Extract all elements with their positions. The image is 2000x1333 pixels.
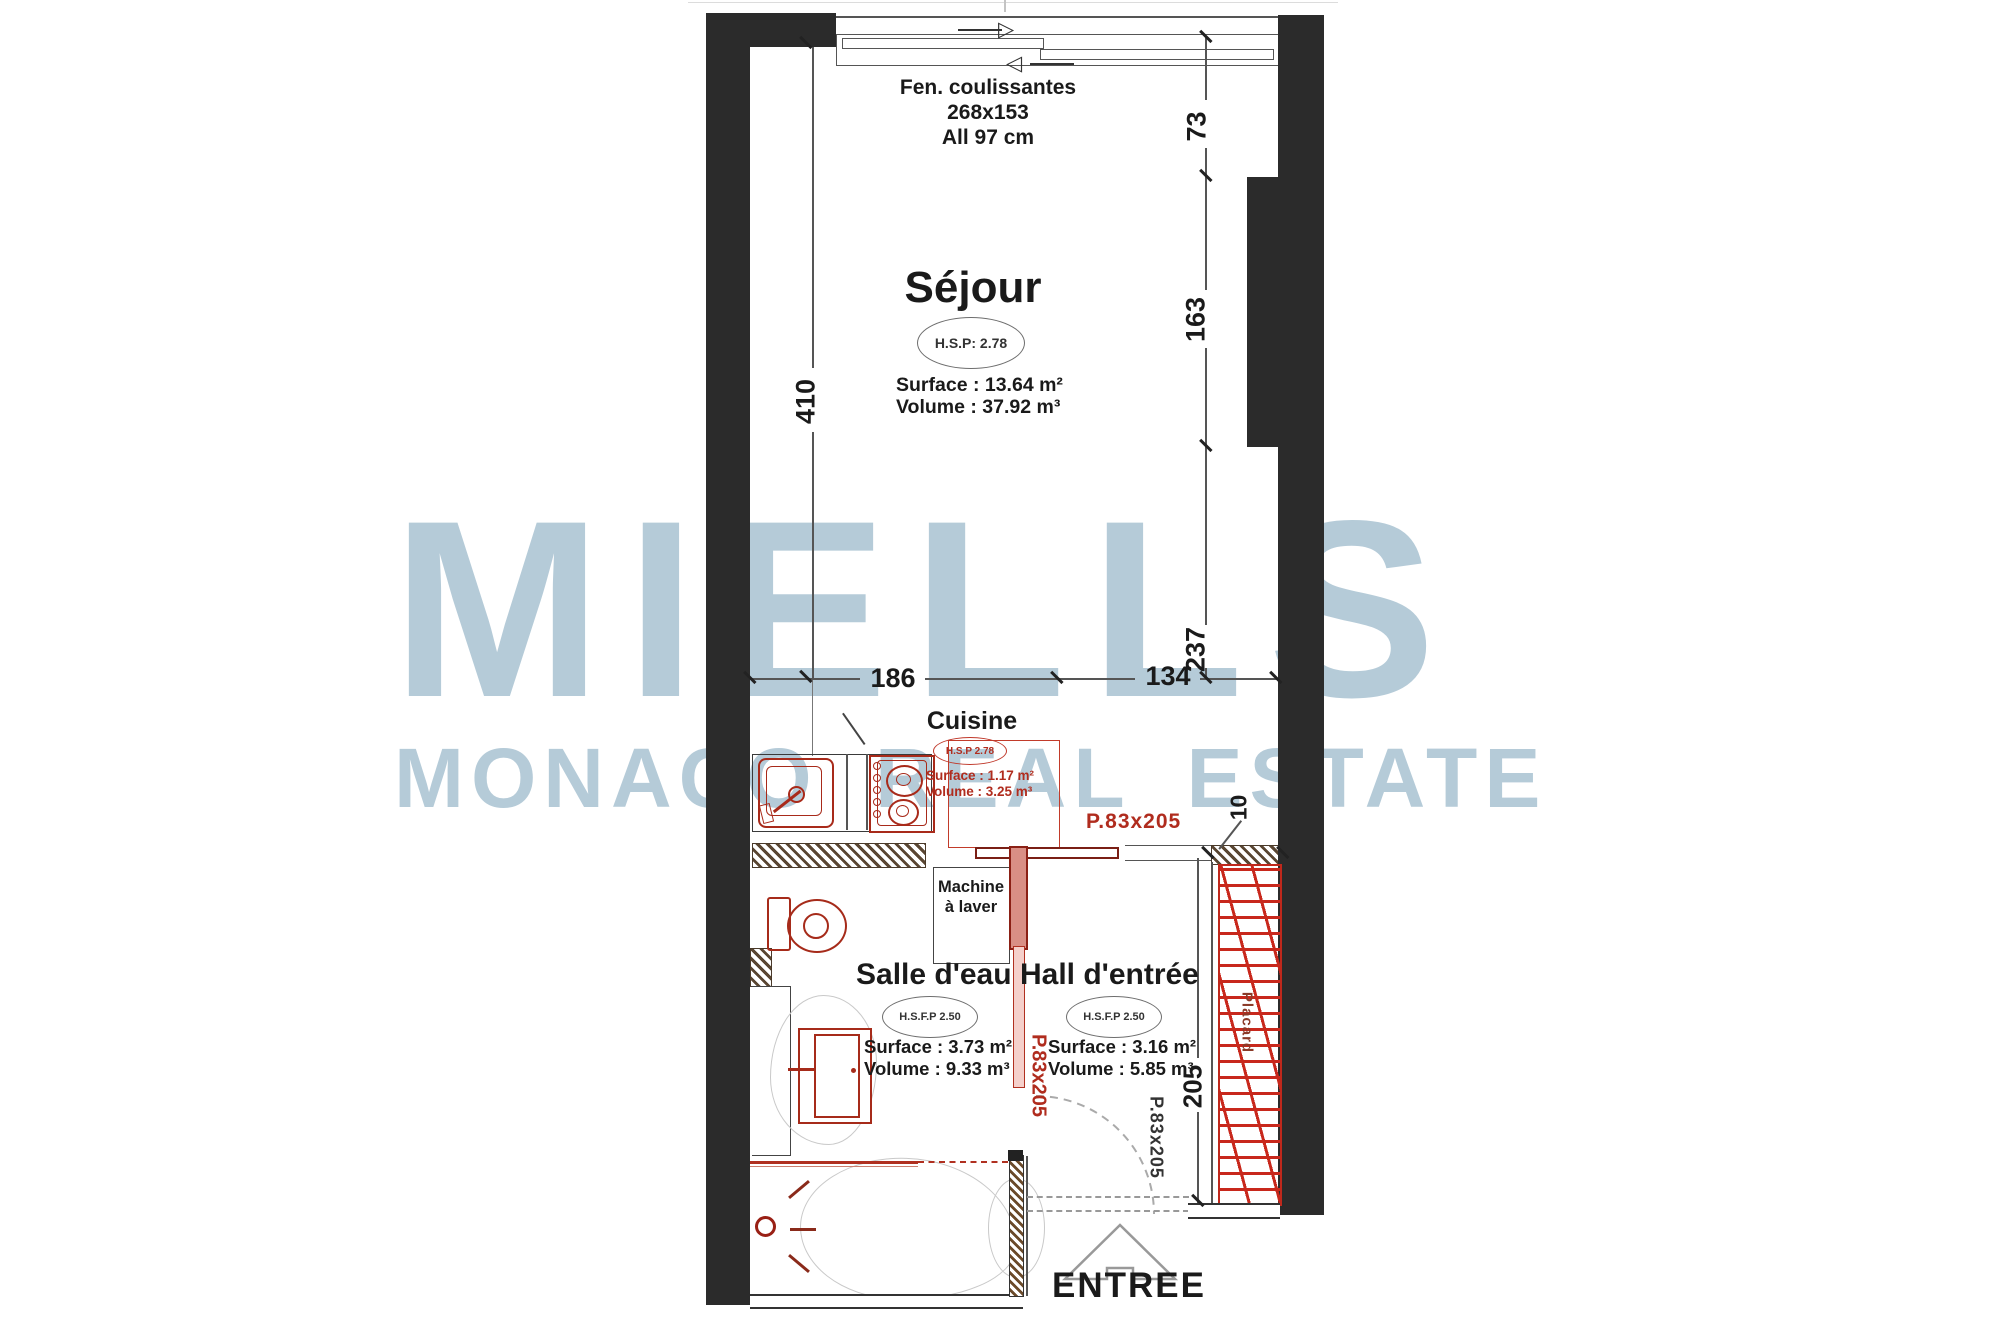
dim-label-163: 163 [1181,280,1212,360]
dim-line-410-a [812,45,814,368]
placard-left-line [1211,862,1213,1205]
room-label-salle-deau: Salle d'eau [856,958,1012,992]
stove-knob [873,798,881,806]
washing-machine-label-1: Machine [930,878,1012,897]
placard-top-wall [1211,845,1285,865]
dim-line-right-b [1205,148,1207,290]
stove-knob [873,774,881,782]
dim-label-10: 10 [1226,778,1253,838]
window-slide-arrow-right-icon: ▷ [998,17,1014,42]
cuisine-ceiling-label: H.S.P 2.78 [946,746,994,757]
dim-line-410-b [812,432,814,678]
sejour-ceiling-ellipse: H.S.P: 2.78 [917,317,1025,369]
sejour-volume: Volume : 37.92 m³ [896,396,1060,419]
shower-spray-tick [788,1180,810,1199]
right-wall-pilaster [1247,177,1278,447]
hall-top-wall [1125,845,1211,861]
window-label-type: Fen. coulissantes [868,76,1108,100]
dim-line-width-b [925,678,1135,680]
vanity-basin [814,1034,860,1118]
bath-bottom-red-line2 [750,1166,918,1167]
bathroom-door-label: P.83x205 [1027,1016,1050,1136]
facade-line [836,16,1278,18]
bath-bottom-red-line [750,1161,918,1164]
shower-outlet-icon [755,1216,776,1237]
dim-label-186: 186 [853,663,933,694]
stove-knob [873,810,881,818]
washing-machine-label-2: à laver [930,898,1012,917]
dim-label-134: 134 [1128,661,1208,692]
vanity-handle [788,1068,814,1071]
stove-knob [873,786,881,794]
left-wall [706,13,750,1305]
cuisine-door-label: P.83x205 [1086,810,1181,834]
room-label-hall: Hall d'entrée [1020,958,1199,992]
entry-door-hinge [1008,1150,1023,1161]
salle-deau-surface: Surface : 3.73 m² [864,1036,1012,1058]
window-slide-arrow-right-line [958,29,1002,31]
window-label-size: 268x153 [868,101,1108,125]
entry-threshold-dash [1027,1210,1189,1212]
salle-deau-volume: Volume : 9.33 m³ [864,1058,1010,1080]
hall-ceiling-ellipse: H.S.F.P 2.50 [1066,996,1162,1038]
entry-door-leaf-hatched [1009,1155,1024,1297]
top-left-wall [706,13,836,47]
salle-deau-ceiling-label: H.S.F.P 2.50 [899,1011,961,1023]
floorplan-canvas: MIELLS MONACO REAL ESTATE ▷ ◁ Fen. couli… [0,0,2000,1333]
room-label-cuisine: Cuisine [912,707,1032,736]
shower-spray-tick [788,1254,810,1273]
salle-deau-ceiling-ellipse: H.S.F.P 2.50 [882,996,978,1038]
toilet-bowl-center [803,913,829,939]
window-pane-right [1040,49,1274,60]
window-slide-arrow-left-line [1030,63,1074,65]
vanity-drain-dot [851,1068,856,1073]
kitchen-door-leaf [975,847,1119,859]
stove-knob [873,762,881,770]
entry-door-label: P.83x205 [1146,1083,1167,1193]
hall-ceiling-label: H.S.F.P 2.50 [1083,1011,1145,1023]
stove-burner-large-center [896,773,911,786]
scan-edge-line [688,2,1338,3]
entrance-label: ENTREE [1052,1266,1197,1306]
bath-bottom-red-dashed [918,1161,1008,1163]
dim-line-width-a [750,678,860,680]
bathtub-cloud-outline [798,1154,1020,1303]
cuisine-ceiling-ellipse: H.S.P 2.78 [933,737,1007,765]
entry-threshold-dash [1027,1196,1189,1198]
sejour-ceiling-label: H.S.P: 2.78 [935,335,1007,351]
window-label-sill: All 97 cm [868,126,1108,150]
room-label-sejour: Séjour [898,263,1048,313]
hall-surface: Surface : 3.16 m² [1048,1036,1196,1058]
bottom-wall [750,1294,1023,1309]
dim-label-73: 73 [1182,87,1213,167]
window-slide-arrow-left-icon: ◁ [1006,51,1022,76]
placard-label: Placard [1239,968,1256,1078]
kitchen-bath-wall [752,843,926,868]
dim-label-410: 410 [791,362,822,442]
scan-tick [1004,0,1006,12]
dim-line-extension [812,680,813,756]
dim-line-width-c [1200,678,1277,680]
cuisine-surface: Surface : 1.17 m² [926,768,1034,783]
counter-divider [866,754,868,830]
stove-burner-small-center [896,805,909,817]
dim-line-right-c [1205,348,1207,625]
cuisine-volume: Volume : 3.25 m³ [926,784,1032,799]
counter-divider [846,754,848,830]
right-wall [1278,15,1324,1215]
hall-volume: Volume : 5.85 m³ [1048,1058,1194,1080]
shower-spray-tick [790,1228,816,1231]
bath-wall-hatch [750,948,772,987]
sejour-surface: Surface : 13.64 m² [896,374,1063,397]
